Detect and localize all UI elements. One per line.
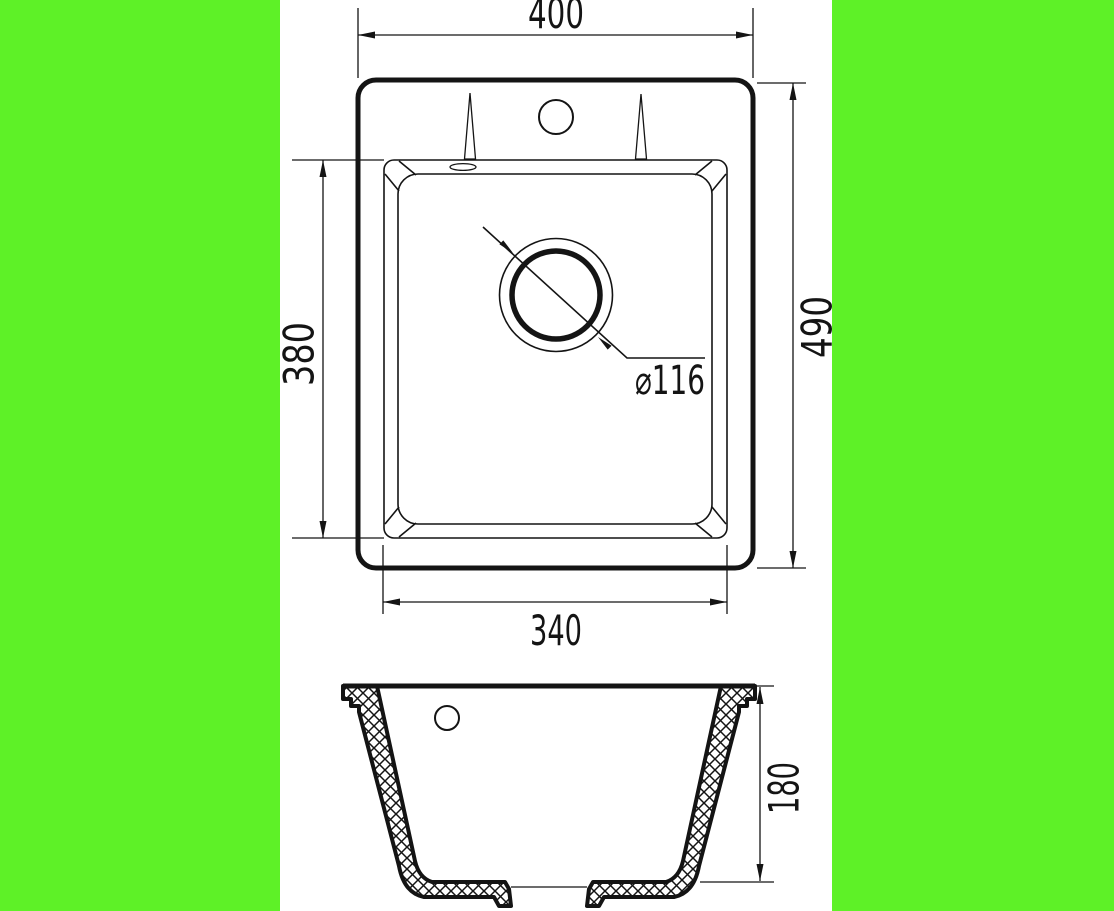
- drain-diameter-label: ⌀116: [635, 358, 705, 404]
- bowl-depth-label: 380: [275, 322, 324, 386]
- sink-drawing-canvas: ⌀116 400 490: [0, 0, 1114, 911]
- overall-depth-label: 490: [793, 296, 842, 358]
- bowl-width-label: 340: [530, 606, 582, 655]
- paper-background: [280, 0, 832, 911]
- bowl-height-label: 180: [760, 762, 809, 814]
- sink-technical-drawing-page: ⌀116 400 490: [0, 0, 1114, 911]
- overall-width-label: 400: [528, 0, 584, 38]
